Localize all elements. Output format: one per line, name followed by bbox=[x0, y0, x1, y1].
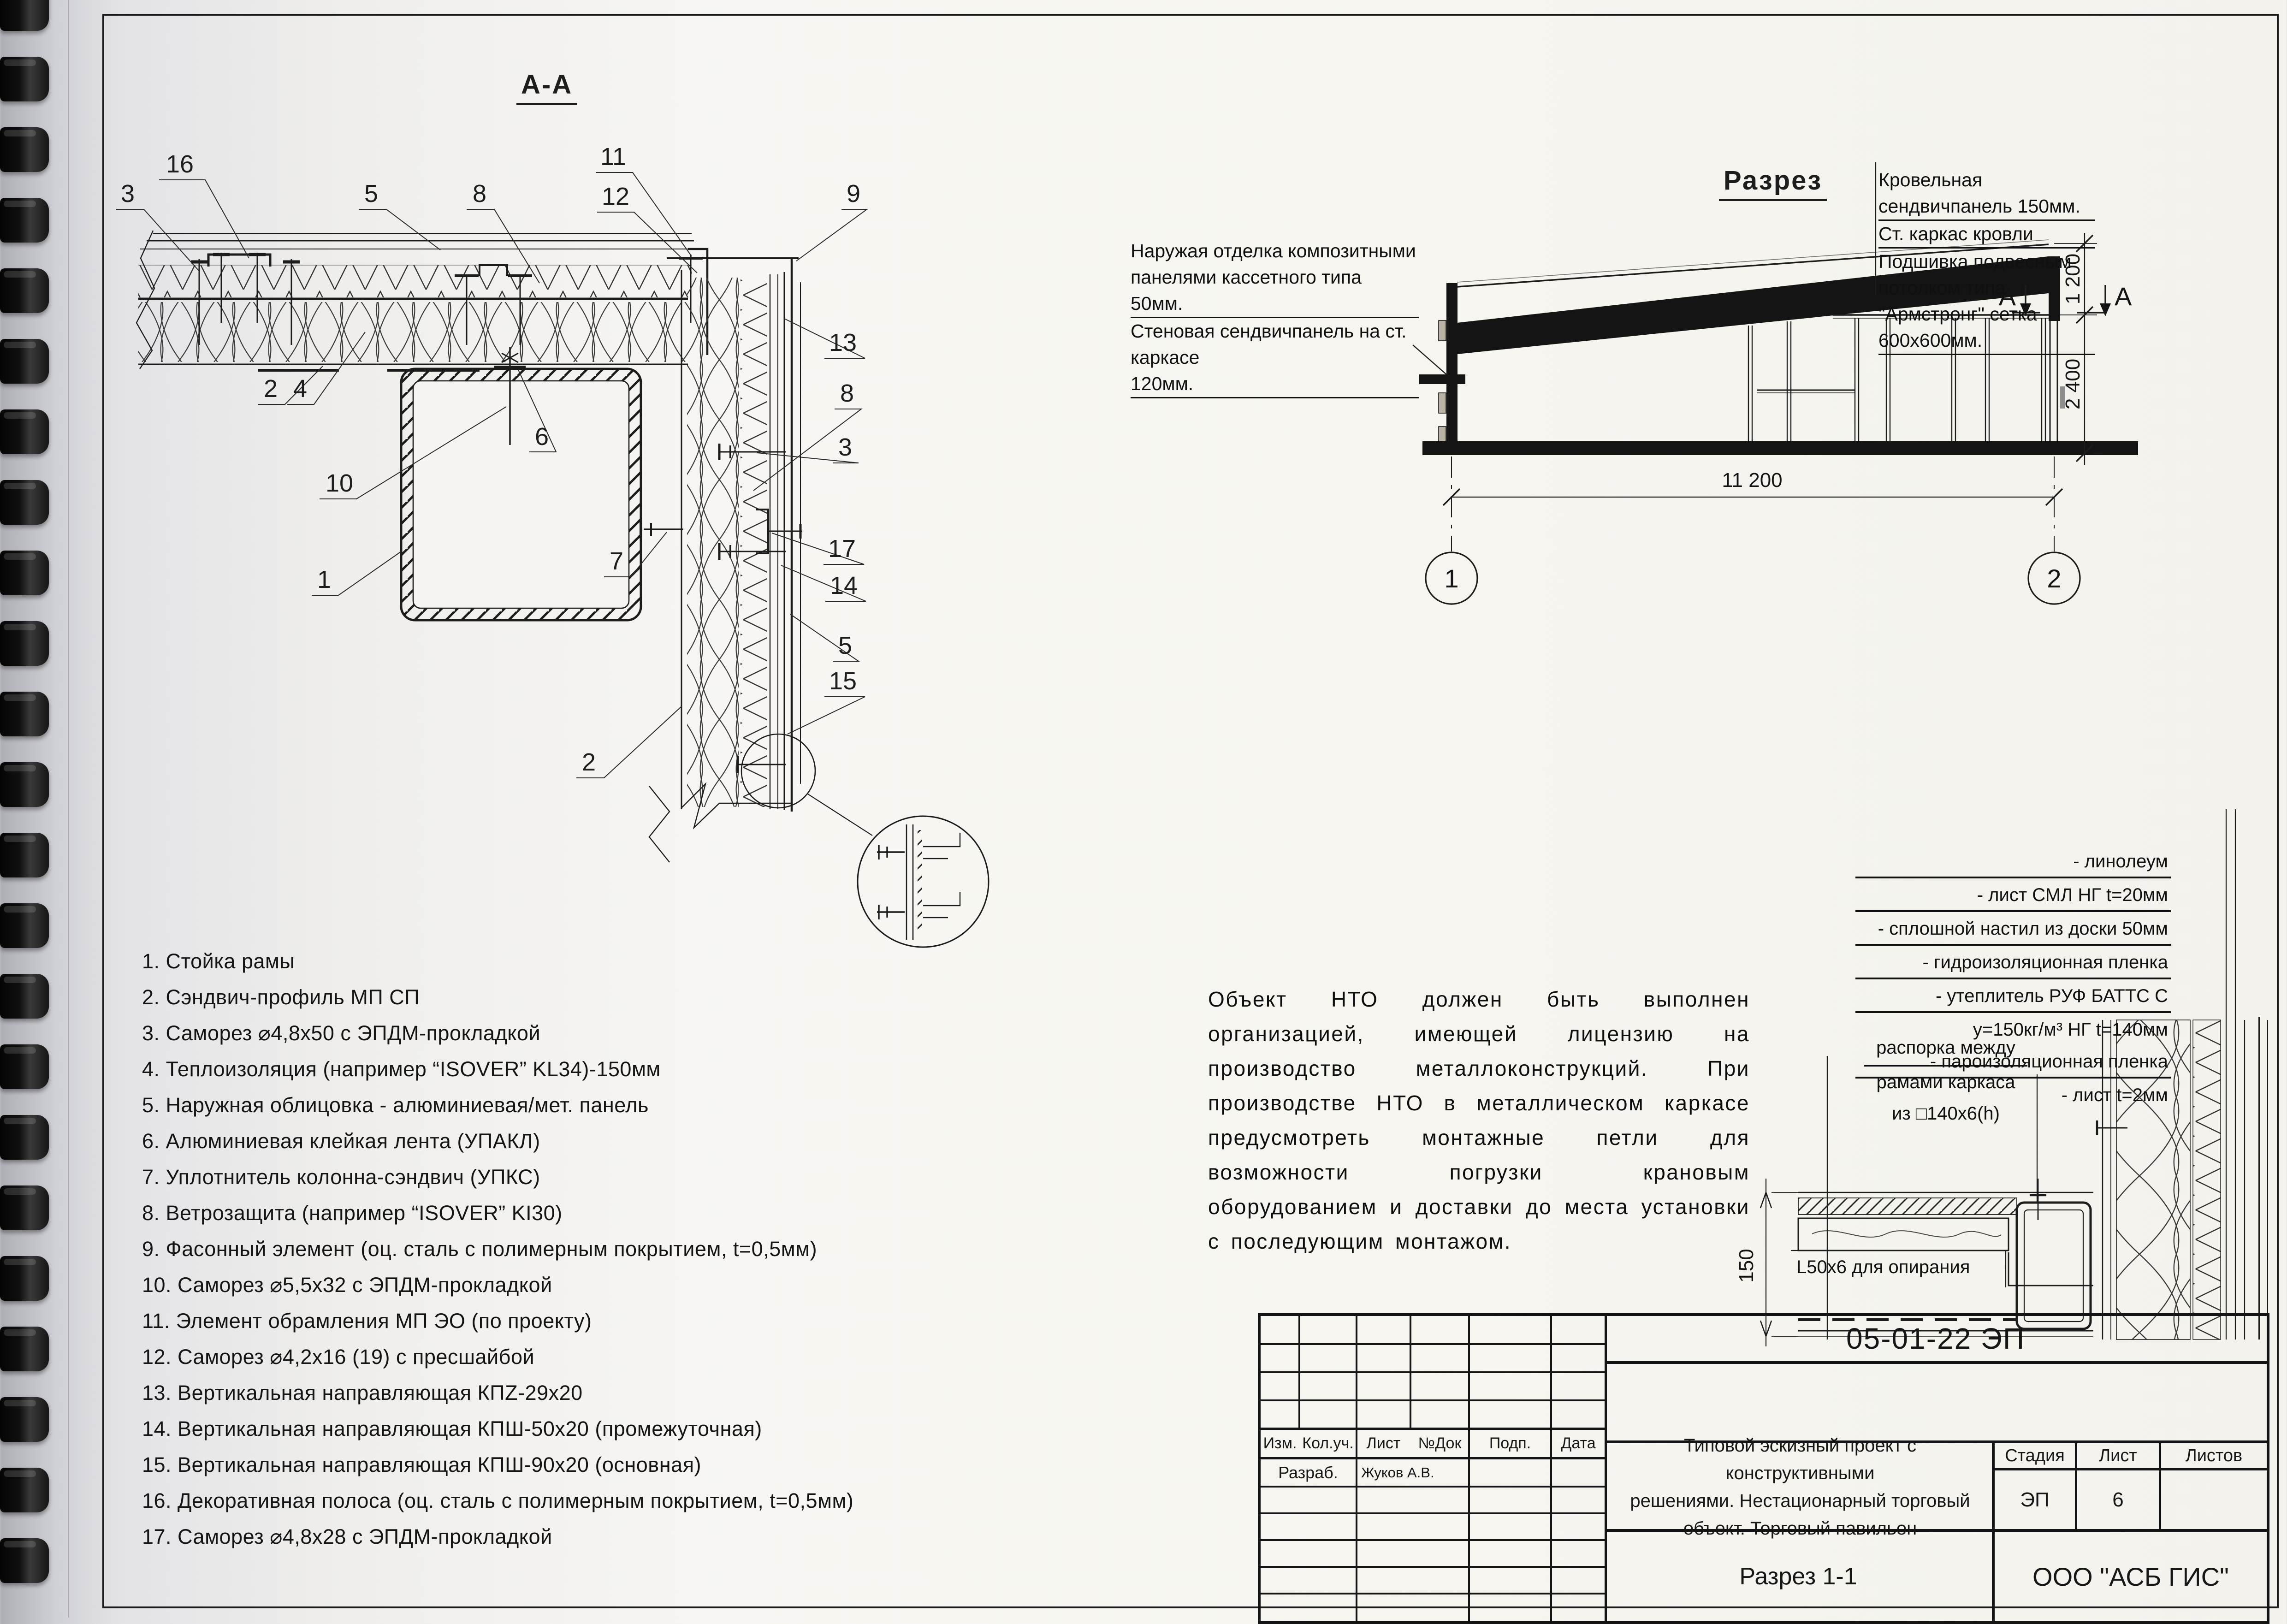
callout-3b: 3 bbox=[838, 433, 852, 461]
tb-sheet-value: 6 bbox=[2077, 1470, 2159, 1529]
tb-sheets-value bbox=[2161, 1470, 2267, 1529]
roof-note-line-3: Подшивка подвесным потолком типа bbox=[1878, 249, 2095, 301]
legend-item: 8. Ветрозащита (например “ISOVER” KI30) bbox=[142, 1195, 853, 1231]
tb-project-name: Типовой эскизный проект с конструктивным… bbox=[1611, 1446, 1989, 1528]
spacer-note-line-3: из □140х6(h) bbox=[1849, 1098, 2043, 1129]
tb-drawing-name: Разрез 1-1 bbox=[1605, 1532, 1992, 1621]
title-block: Изм. Кол.уч. Лист №Док Подп. Дата Разраб… bbox=[1258, 1313, 2269, 1624]
wall-note-line-2: панелями кассетного типа 50мм. bbox=[1131, 264, 1419, 318]
legend-item: 9. Фасонный элемент (оц. сталь с полимер… bbox=[142, 1231, 853, 1267]
section-title: Разрез bbox=[1719, 165, 1827, 201]
axis-1-label: 1 bbox=[1444, 564, 1458, 593]
callout-8: 8 bbox=[473, 180, 486, 207]
callout-2b: 2 bbox=[582, 748, 596, 776]
nto-note: Объект НТО должен быть выполнен организа… bbox=[1208, 982, 1750, 1259]
legend-item: 12. Саморез ⌀4,2х16 (19) с пресшайбой bbox=[142, 1339, 853, 1375]
section-marker-right: А bbox=[2115, 282, 2132, 311]
tb-line bbox=[1261, 1343, 1605, 1345]
legend-item: 5. Наружная облицовка - алюминиевая/мет.… bbox=[142, 1087, 853, 1123]
roof-note: Кровельная сендвичпанель 150мм. Ст. карк… bbox=[1878, 167, 2095, 355]
spacer-note-line-2: рамами каркаса bbox=[1849, 1067, 2043, 1098]
tb-line bbox=[1261, 1486, 1605, 1488]
tb-sheet-label: Лист bbox=[2077, 1443, 2159, 1468]
legend-item: 10. Саморез ⌀5,5х32 с ЭПДМ-прокладкой bbox=[142, 1267, 853, 1303]
tb-line bbox=[1261, 1371, 1605, 1373]
tb-col-list: Лист bbox=[1357, 1429, 1410, 1457]
callout-5b: 5 bbox=[838, 632, 852, 659]
legend-item: 16. Декоративная полоса (оц. сталь с пол… bbox=[142, 1483, 853, 1519]
callout-8b: 8 bbox=[840, 379, 854, 407]
legend-item: 6. Алюминиевая клейкая лента (УПАКЛ) bbox=[142, 1123, 853, 1159]
wall-note-line-3: Стеновая сендвичпанель на ст. каркасе bbox=[1131, 318, 1419, 371]
legend-item: 7. Уплотнитель колонна-сэндвич (УПКС) bbox=[142, 1159, 853, 1195]
spacer-note-line-1: распорка между bbox=[1864, 1032, 2027, 1067]
callout-9: 9 bbox=[847, 180, 860, 207]
legend-item: 15. Вертикальная направляющая КПШ-90х20 … bbox=[142, 1447, 853, 1483]
callout-2: 2 bbox=[264, 375, 278, 403]
roof-note-line-2: Ст. каркас кровли bbox=[1878, 221, 2095, 249]
tb-project-line: Типовой эскизный проект с конструктивным… bbox=[1611, 1432, 1989, 1487]
legend-item: 3. Саморез ⌀4,8х50 с ЭПДМ-прокладкой bbox=[142, 1015, 853, 1051]
floor-layer: - линолеум bbox=[1855, 845, 2171, 878]
legend-item: 11. Элемент обрамления МП ЭО (по проекту… bbox=[142, 1303, 853, 1339]
legend-list: 1. Стойка рамы 2. Сэндвич-профиль МП СП … bbox=[142, 943, 853, 1555]
callout-14: 14 bbox=[830, 572, 858, 599]
callout-5: 5 bbox=[364, 180, 378, 207]
legend-item: 13. Вертикальная направляющая КПZ-29х20 bbox=[142, 1375, 853, 1411]
tb-doc-code: 05-01-22 ЭП bbox=[1605, 1316, 2267, 1361]
legend-item: 17. Саморез ⌀4,8х28 с ЭПДМ-прокладкой bbox=[142, 1519, 853, 1555]
tb-line bbox=[1261, 1566, 1605, 1568]
callout-1: 1 bbox=[317, 566, 331, 593]
wall-note-line-1: Наружая отделка композитными bbox=[1131, 238, 1419, 264]
tb-line bbox=[1261, 1539, 1605, 1541]
callout-16: 16 bbox=[166, 150, 194, 178]
tb-col-koluch: Кол.уч. bbox=[1300, 1429, 1356, 1457]
wall-note: Наружая отделка композитными панелями ка… bbox=[1131, 238, 1419, 398]
roof-note-line-4: "Армстронг" сетка 600х600мм. bbox=[1878, 301, 2095, 355]
dim-wall-height: 2 400 bbox=[2062, 359, 2084, 409]
callout-4: 4 bbox=[293, 375, 307, 403]
legend-item: 1. Стойка рамы bbox=[142, 943, 853, 979]
legend-item: 4. Теплоизоляция (например “ISOVER” KL34… bbox=[142, 1051, 853, 1087]
callout-17: 17 bbox=[828, 535, 856, 563]
axis-2-label: 2 bbox=[2047, 564, 2061, 593]
tb-developer-name: Жуков А.В. bbox=[1357, 1459, 1472, 1486]
tb-line bbox=[1261, 1399, 1605, 1401]
tb-line bbox=[1261, 1512, 1605, 1514]
legend-item: 14. Вертикальная направляющая КПШ-50х20 … bbox=[142, 1411, 853, 1447]
tb-developer-label: Разраб. bbox=[1261, 1459, 1356, 1486]
callout-10: 10 bbox=[326, 469, 353, 497]
callout-7: 7 bbox=[610, 547, 623, 575]
floor-layer: - гидроизоляционная пленка bbox=[1855, 946, 2171, 979]
callout-12: 12 bbox=[602, 183, 629, 210]
floor-layer: - утеплитель РУФ БАТТС С bbox=[1855, 979, 2171, 1013]
callout-6: 6 bbox=[535, 423, 549, 450]
tb-sheets-label: Листов bbox=[2161, 1443, 2267, 1468]
wall-note-line-4: 120мм. bbox=[1131, 371, 1419, 398]
detail-aa-drawing bbox=[136, 231, 989, 947]
legend-item: 2. Сэндвич-профиль МП СП bbox=[142, 979, 853, 1015]
tb-stage-value: ЭП bbox=[1995, 1470, 2075, 1529]
dim-width: 11 200 bbox=[1722, 469, 1782, 492]
tb-project-line: решениями. Нестационарный торговый bbox=[1630, 1487, 1970, 1515]
callout-3: 3 bbox=[121, 180, 135, 207]
tb-stage-label: Стадия bbox=[1995, 1443, 2075, 1468]
tb-company: ООО "АСБ ГИС" bbox=[1995, 1532, 2267, 1621]
spacer-note: распорка между рамами каркаса из □140х6(… bbox=[1849, 1032, 2043, 1129]
callout-13: 13 bbox=[829, 329, 857, 356]
tb-col-data: Дата bbox=[1552, 1429, 1605, 1457]
tb-line bbox=[1550, 1316, 1552, 1621]
tb-col-podp: Подп. bbox=[1470, 1429, 1550, 1457]
support-note: L50х6 для опирания bbox=[1796, 1257, 1970, 1278]
callout-15: 15 bbox=[829, 667, 857, 695]
floor-layer: - сплошной настил из доски 50мм bbox=[1855, 912, 2171, 946]
detail-aa-title: А-А bbox=[516, 69, 577, 105]
tb-line bbox=[1261, 1593, 1605, 1594]
roof-note-line-1: Кровельная сендвичпанель 150мм. bbox=[1878, 167, 2095, 221]
tb-col-izm: Изм. bbox=[1261, 1429, 1299, 1457]
callout-11: 11 bbox=[600, 143, 626, 171]
tb-col-ndok: №Док bbox=[1411, 1429, 1468, 1457]
tb-line bbox=[1605, 1361, 2267, 1364]
floor-layer: - лист СМЛ НГ t=20мм bbox=[1855, 878, 2171, 912]
